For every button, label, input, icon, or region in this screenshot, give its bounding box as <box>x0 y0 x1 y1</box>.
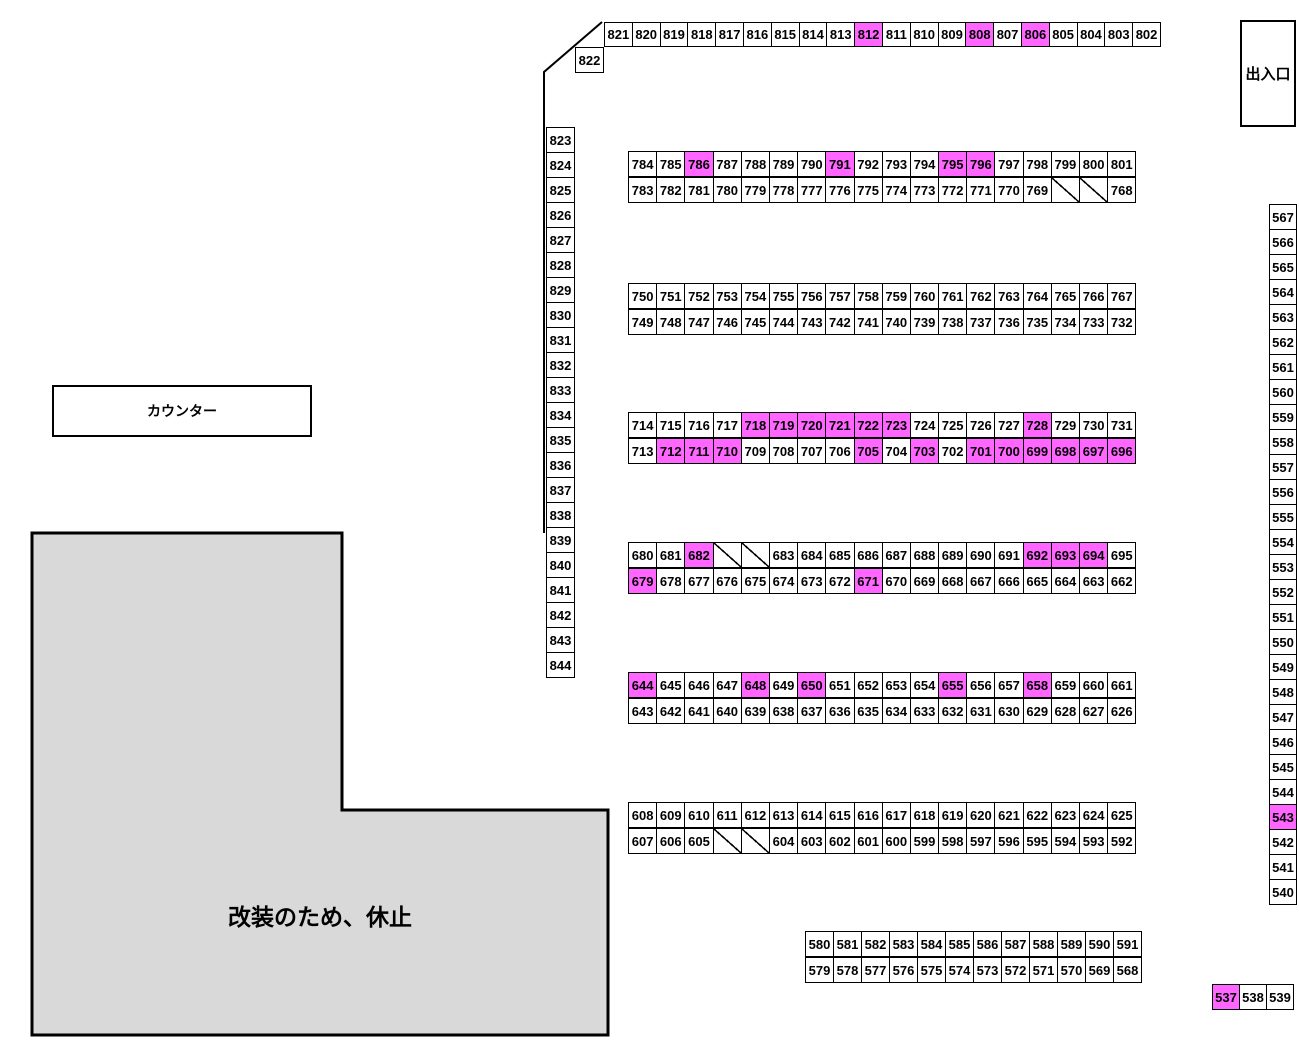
seat-550[interactable]: 550 <box>1269 629 1297 655</box>
seat-812[interactable]: 812 <box>854 22 883 47</box>
seat-766[interactable]: 766 <box>1079 283 1108 309</box>
seat-780[interactable]: 780 <box>713 177 742 203</box>
seat-613[interactable]: 613 <box>769 802 798 828</box>
seat-618[interactable]: 618 <box>910 802 939 828</box>
seat-770[interactable]: 770 <box>994 177 1023 203</box>
seat-603[interactable]: 603 <box>797 828 826 854</box>
seat-585[interactable]: 585 <box>945 931 974 957</box>
seat-755[interactable]: 755 <box>769 283 798 309</box>
seat-614[interactable]: 614 <box>797 802 826 828</box>
seat-624[interactable]: 624 <box>1079 802 1108 828</box>
seat-838[interactable]: 838 <box>546 502 575 528</box>
seat-730[interactable]: 730 <box>1079 412 1108 438</box>
seat-662[interactable]: 662 <box>1107 568 1136 594</box>
seat-584[interactable]: 584 <box>917 931 946 957</box>
seat-541[interactable]: 541 <box>1269 854 1297 880</box>
seat-595[interactable]: 595 <box>1023 828 1052 854</box>
seat-774[interactable]: 774 <box>882 177 911 203</box>
seat-754[interactable]: 754 <box>741 283 770 309</box>
seat-782[interactable]: 782 <box>656 177 685 203</box>
seat-814[interactable]: 814 <box>799 22 828 47</box>
seat-757[interactable]: 757 <box>825 283 854 309</box>
seat-587[interactable]: 587 <box>1001 931 1030 957</box>
seat-776[interactable]: 776 <box>825 177 854 203</box>
seat-805[interactable]: 805 <box>1049 22 1078 47</box>
seat-539[interactable]: 539 <box>1266 984 1294 1010</box>
seat-683[interactable]: 683 <box>769 542 798 568</box>
seat-593[interactable]: 593 <box>1079 828 1108 854</box>
seat-830[interactable]: 830 <box>546 302 575 328</box>
seat-793[interactable]: 793 <box>882 151 911 177</box>
seat-758[interactable]: 758 <box>854 283 883 309</box>
seat-602[interactable]: 602 <box>825 828 854 854</box>
seat-722[interactable]: 722 <box>854 412 883 438</box>
seat-807[interactable]: 807 <box>993 22 1022 47</box>
seat-829[interactable]: 829 <box>546 277 575 303</box>
seat-594[interactable]: 594 <box>1051 828 1080 854</box>
seat-826[interactable]: 826 <box>546 202 575 228</box>
seat-597[interactable]: 597 <box>966 828 995 854</box>
seat-768[interactable]: 768 <box>1107 177 1136 203</box>
seat-742[interactable]: 742 <box>825 309 854 335</box>
seat-724[interactable]: 724 <box>910 412 939 438</box>
seat-553[interactable]: 553 <box>1269 554 1297 580</box>
seat-795[interactable]: 795 <box>938 151 967 177</box>
seat-668[interactable]: 668 <box>938 568 967 594</box>
seat-823[interactable]: 823 <box>546 127 575 153</box>
seat-592[interactable]: 592 <box>1107 828 1136 854</box>
seat-600[interactable]: 600 <box>882 828 911 854</box>
seat-670[interactable]: 670 <box>882 568 911 594</box>
seat-717[interactable]: 717 <box>713 412 742 438</box>
seat-820[interactable]: 820 <box>632 22 661 47</box>
seat-688[interactable]: 688 <box>910 542 939 568</box>
seat-819[interactable]: 819 <box>660 22 689 47</box>
seat-789[interactable]: 789 <box>769 151 798 177</box>
seat-773[interactable]: 773 <box>910 177 939 203</box>
seat-728[interactable]: 728 <box>1023 412 1052 438</box>
seat-678[interactable]: 678 <box>656 568 685 594</box>
seat-604[interactable]: 604 <box>769 828 798 854</box>
seat-674[interactable]: 674 <box>769 568 798 594</box>
seat-569[interactable]: 569 <box>1085 957 1114 983</box>
seat-715[interactable]: 715 <box>656 412 685 438</box>
seat-836[interactable]: 836 <box>546 452 575 478</box>
seat-804[interactable]: 804 <box>1077 22 1106 47</box>
seat-756[interactable]: 756 <box>797 283 826 309</box>
seat-745[interactable]: 745 <box>741 309 770 335</box>
seat-706[interactable]: 706 <box>825 438 854 464</box>
seat-790[interactable]: 790 <box>797 151 826 177</box>
seat-842[interactable]: 842 <box>546 602 575 628</box>
seat-837[interactable]: 837 <box>546 477 575 503</box>
seat-767[interactable]: 767 <box>1107 283 1136 309</box>
seat-712[interactable]: 712 <box>656 438 685 464</box>
seat-632[interactable]: 632 <box>938 698 967 724</box>
seat-673[interactable]: 673 <box>797 568 826 594</box>
seat-659[interactable]: 659 <box>1051 672 1080 698</box>
seat-644[interactable]: 644 <box>628 672 657 698</box>
seat-690[interactable]: 690 <box>966 542 995 568</box>
seat-542[interactable]: 542 <box>1269 829 1297 855</box>
seat-588[interactable]: 588 <box>1029 931 1058 957</box>
seat-557[interactable]: 557 <box>1269 454 1297 480</box>
seat-631[interactable]: 631 <box>966 698 995 724</box>
seat-537[interactable]: 537 <box>1212 984 1240 1010</box>
seat-731[interactable]: 731 <box>1107 412 1136 438</box>
seat-713[interactable]: 713 <box>628 438 657 464</box>
seat-547[interactable]: 547 <box>1269 704 1297 730</box>
seat-813[interactable]: 813 <box>826 22 855 47</box>
seat-664[interactable]: 664 <box>1051 568 1080 594</box>
seat-665[interactable]: 665 <box>1023 568 1052 594</box>
seat-577[interactable]: 577 <box>861 957 890 983</box>
seat-783[interactable]: 783 <box>628 177 657 203</box>
seat-622[interactable]: 622 <box>1023 802 1052 828</box>
seat-666[interactable]: 666 <box>994 568 1023 594</box>
seat-636[interactable]: 636 <box>825 698 854 724</box>
seat-601[interactable]: 601 <box>854 828 883 854</box>
seat-815[interactable]: 815 <box>771 22 800 47</box>
seat-672[interactable]: 672 <box>825 568 854 594</box>
seat-784[interactable]: 784 <box>628 151 657 177</box>
seat-710[interactable]: 710 <box>713 438 742 464</box>
seat-693[interactable]: 693 <box>1051 542 1080 568</box>
seat-778[interactable]: 778 <box>769 177 798 203</box>
seat-572[interactable]: 572 <box>1001 957 1030 983</box>
seat-615[interactable]: 615 <box>825 802 854 828</box>
seat-733[interactable]: 733 <box>1079 309 1108 335</box>
seat-567[interactable]: 567 <box>1269 204 1297 230</box>
seat-607[interactable]: 607 <box>628 828 657 854</box>
seat-546[interactable]: 546 <box>1269 729 1297 755</box>
seat-738[interactable]: 738 <box>938 309 967 335</box>
seat-698[interactable]: 698 <box>1051 438 1080 464</box>
seat-625[interactable]: 625 <box>1107 802 1136 828</box>
seat-635[interactable]: 635 <box>854 698 883 724</box>
seat-791[interactable]: 791 <box>825 151 854 177</box>
seat-653[interactable]: 653 <box>882 672 911 698</box>
seat-640[interactable]: 640 <box>713 698 742 724</box>
seat-801[interactable]: 801 <box>1107 151 1136 177</box>
seat-581[interactable]: 581 <box>833 931 862 957</box>
seat-680[interactable]: 680 <box>628 542 657 568</box>
seat-762[interactable]: 762 <box>966 283 995 309</box>
seat-743[interactable]: 743 <box>797 309 826 335</box>
seat-711[interactable]: 711 <box>684 438 713 464</box>
seat-578[interactable]: 578 <box>833 957 862 983</box>
seat-734[interactable]: 734 <box>1051 309 1080 335</box>
seat-562[interactable]: 562 <box>1269 329 1297 355</box>
seat-786[interactable]: 786 <box>684 151 713 177</box>
seat-843[interactable]: 843 <box>546 627 575 653</box>
seat-649[interactable]: 649 <box>769 672 798 698</box>
seat-753[interactable]: 753 <box>713 283 742 309</box>
seat-686[interactable]: 686 <box>854 542 883 568</box>
seat-701[interactable]: 701 <box>966 438 995 464</box>
seat-703[interactable]: 703 <box>910 438 939 464</box>
seat-806[interactable]: 806 <box>1021 22 1050 47</box>
seat-799[interactable]: 799 <box>1051 151 1080 177</box>
seat-608[interactable]: 608 <box>628 802 657 828</box>
seat-645[interactable]: 645 <box>656 672 685 698</box>
seat-771[interactable]: 771 <box>966 177 995 203</box>
seat-556[interactable]: 556 <box>1269 479 1297 505</box>
seat-719[interactable]: 719 <box>769 412 798 438</box>
seat-552[interactable]: 552 <box>1269 579 1297 605</box>
seat-643[interactable]: 643 <box>628 698 657 724</box>
seat-654[interactable]: 654 <box>910 672 939 698</box>
seat-657[interactable]: 657 <box>994 672 1023 698</box>
seat-637[interactable]: 637 <box>797 698 826 724</box>
seat-660[interactable]: 660 <box>1079 672 1108 698</box>
seat-747[interactable]: 747 <box>684 309 713 335</box>
seat-571[interactable]: 571 <box>1029 957 1058 983</box>
seat-551[interactable]: 551 <box>1269 604 1297 630</box>
seat-817[interactable]: 817 <box>715 22 744 47</box>
seat-554[interactable]: 554 <box>1269 529 1297 555</box>
seat-834[interactable]: 834 <box>546 402 575 428</box>
seat-639[interactable]: 639 <box>741 698 770 724</box>
seat-634[interactable]: 634 <box>882 698 911 724</box>
seat-580[interactable]: 580 <box>805 931 834 957</box>
seat-827[interactable]: 827 <box>546 227 575 253</box>
seat-816[interactable]: 816 <box>743 22 772 47</box>
seat-726[interactable]: 726 <box>966 412 995 438</box>
seat-540[interactable]: 540 <box>1269 879 1297 905</box>
seat-669[interactable]: 669 <box>910 568 939 594</box>
seat-574[interactable]: 574 <box>945 957 974 983</box>
seat-744[interactable]: 744 <box>769 309 798 335</box>
seat-808[interactable]: 808 <box>965 22 994 47</box>
seat-740[interactable]: 740 <box>882 309 911 335</box>
seat-561[interactable]: 561 <box>1269 354 1297 380</box>
seat-538[interactable]: 538 <box>1239 984 1267 1010</box>
seat-682[interactable]: 682 <box>684 542 713 568</box>
seat-721[interactable]: 721 <box>825 412 854 438</box>
seat-841[interactable]: 841 <box>546 577 575 603</box>
seat-652[interactable]: 652 <box>854 672 883 698</box>
seat-671[interactable]: 671 <box>854 568 883 594</box>
seat-599[interactable]: 599 <box>910 828 939 854</box>
seat-605[interactable]: 605 <box>684 828 713 854</box>
seat-564[interactable]: 564 <box>1269 279 1297 305</box>
seat-694[interactable]: 694 <box>1079 542 1108 568</box>
seat-833[interactable]: 833 <box>546 377 575 403</box>
seat-803[interactable]: 803 <box>1104 22 1133 47</box>
seat-752[interactable]: 752 <box>684 283 713 309</box>
seat-661[interactable]: 661 <box>1107 672 1136 698</box>
seat-575[interactable]: 575 <box>917 957 946 983</box>
seat-656[interactable]: 656 <box>966 672 995 698</box>
seat-716[interactable]: 716 <box>684 412 713 438</box>
seat-621[interactable]: 621 <box>994 802 1023 828</box>
seat-626[interactable]: 626 <box>1107 698 1136 724</box>
seat-741[interactable]: 741 <box>854 309 883 335</box>
seat-718[interactable]: 718 <box>741 412 770 438</box>
seat-705[interactable]: 705 <box>854 438 883 464</box>
seat-832[interactable]: 832 <box>546 352 575 378</box>
seat-570[interactable]: 570 <box>1057 957 1086 983</box>
seat-555[interactable]: 555 <box>1269 504 1297 530</box>
seat-831[interactable]: 831 <box>546 327 575 353</box>
seat-560[interactable]: 560 <box>1269 379 1297 405</box>
seat-714[interactable]: 714 <box>628 412 657 438</box>
seat-729[interactable]: 729 <box>1051 412 1080 438</box>
seat-623[interactable]: 623 <box>1051 802 1080 828</box>
seat-616[interactable]: 616 <box>854 802 883 828</box>
seat-775[interactable]: 775 <box>854 177 883 203</box>
seat-675[interactable]: 675 <box>741 568 770 594</box>
seat-545[interactable]: 545 <box>1269 754 1297 780</box>
seat-648[interactable]: 648 <box>741 672 770 698</box>
seat-576[interactable]: 576 <box>889 957 918 983</box>
seat-779[interactable]: 779 <box>741 177 770 203</box>
seat-676[interactable]: 676 <box>713 568 742 594</box>
seat-641[interactable]: 641 <box>684 698 713 724</box>
seat-689[interactable]: 689 <box>938 542 967 568</box>
seat-723[interactable]: 723 <box>882 412 911 438</box>
seat-764[interactable]: 764 <box>1023 283 1052 309</box>
seat-696[interactable]: 696 <box>1107 438 1136 464</box>
seat-589[interactable]: 589 <box>1057 931 1086 957</box>
seat-559[interactable]: 559 <box>1269 404 1297 430</box>
seat-586[interactable]: 586 <box>973 931 1002 957</box>
seat-681[interactable]: 681 <box>656 542 685 568</box>
seat-620[interactable]: 620 <box>966 802 995 828</box>
seat-692[interactable]: 692 <box>1023 542 1052 568</box>
seat-797[interactable]: 797 <box>994 151 1023 177</box>
seat-579[interactable]: 579 <box>805 957 834 983</box>
seat-839[interactable]: 839 <box>546 527 575 553</box>
seat-748[interactable]: 748 <box>656 309 685 335</box>
seat-697[interactable]: 697 <box>1079 438 1108 464</box>
seat-548[interactable]: 548 <box>1269 679 1297 705</box>
seat-802[interactable]: 802 <box>1132 22 1161 47</box>
seat-781[interactable]: 781 <box>684 177 713 203</box>
seat-642[interactable]: 642 <box>656 698 685 724</box>
seat-629[interactable]: 629 <box>1023 698 1052 724</box>
seat-787[interactable]: 787 <box>713 151 742 177</box>
seat-844[interactable]: 844 <box>546 652 575 678</box>
seat-612[interactable]: 612 <box>741 802 770 828</box>
seat-809[interactable]: 809 <box>938 22 967 47</box>
seat-777[interactable]: 777 <box>797 177 826 203</box>
seat-699[interactable]: 699 <box>1023 438 1052 464</box>
seat-824[interactable]: 824 <box>546 152 575 178</box>
seat-667[interactable]: 667 <box>966 568 995 594</box>
seat-749[interactable]: 749 <box>628 309 657 335</box>
seat-840[interactable]: 840 <box>546 552 575 578</box>
seat-609[interactable]: 609 <box>656 802 685 828</box>
seat-751[interactable]: 751 <box>656 283 685 309</box>
seat-750[interactable]: 750 <box>628 283 657 309</box>
seat-583[interactable]: 583 <box>889 931 918 957</box>
seat-687[interactable]: 687 <box>882 542 911 568</box>
seat-772[interactable]: 772 <box>938 177 967 203</box>
seat-685[interactable]: 685 <box>825 542 854 568</box>
seat-563[interactable]: 563 <box>1269 304 1297 330</box>
seat-821[interactable]: 821 <box>604 22 633 47</box>
seat-725[interactable]: 725 <box>938 412 967 438</box>
seat-650[interactable]: 650 <box>797 672 826 698</box>
seat-684[interactable]: 684 <box>797 542 826 568</box>
seat-582[interactable]: 582 <box>861 931 890 957</box>
seat-633[interactable]: 633 <box>910 698 939 724</box>
seat-811[interactable]: 811 <box>882 22 911 47</box>
seat-611[interactable]: 611 <box>713 802 742 828</box>
seat-610[interactable]: 610 <box>684 802 713 828</box>
seat-835[interactable]: 835 <box>546 427 575 453</box>
seat-727[interactable]: 727 <box>994 412 1023 438</box>
seat-708[interactable]: 708 <box>769 438 798 464</box>
seat-617[interactable]: 617 <box>882 802 911 828</box>
seat-736[interactable]: 736 <box>994 309 1023 335</box>
seat-702[interactable]: 702 <box>938 438 967 464</box>
seat-800[interactable]: 800 <box>1079 151 1108 177</box>
seat-735[interactable]: 735 <box>1023 309 1052 335</box>
seat-794[interactable]: 794 <box>910 151 939 177</box>
seat-739[interactable]: 739 <box>910 309 939 335</box>
seat-565[interactable]: 565 <box>1269 254 1297 280</box>
seat-792[interactable]: 792 <box>854 151 883 177</box>
seat-646[interactable]: 646 <box>684 672 713 698</box>
seat-619[interactable]: 619 <box>938 802 967 828</box>
seat-704[interactable]: 704 <box>882 438 911 464</box>
seat-760[interactable]: 760 <box>910 283 939 309</box>
seat-707[interactable]: 707 <box>797 438 826 464</box>
seat-818[interactable]: 818 <box>687 22 716 47</box>
seat-763[interactable]: 763 <box>994 283 1023 309</box>
seat-761[interactable]: 761 <box>938 283 967 309</box>
seat-695[interactable]: 695 <box>1107 542 1136 568</box>
seat-663[interactable]: 663 <box>1079 568 1108 594</box>
seat-825[interactable]: 825 <box>546 177 575 203</box>
seat-700[interactable]: 700 <box>994 438 1023 464</box>
seat-677[interactable]: 677 <box>684 568 713 594</box>
seat-655[interactable]: 655 <box>938 672 967 698</box>
seat-810[interactable]: 810 <box>910 22 939 47</box>
seat-769[interactable]: 769 <box>1023 177 1052 203</box>
seat-598[interactable]: 598 <box>938 828 967 854</box>
seat-647[interactable]: 647 <box>713 672 742 698</box>
seat-590[interactable]: 590 <box>1085 931 1114 957</box>
seat-746[interactable]: 746 <box>713 309 742 335</box>
seat-651[interactable]: 651 <box>825 672 854 698</box>
seat-544[interactable]: 544 <box>1269 779 1297 805</box>
seat-566[interactable]: 566 <box>1269 229 1297 255</box>
seat-628[interactable]: 628 <box>1051 698 1080 724</box>
seat-543[interactable]: 543 <box>1269 804 1297 830</box>
seat-765[interactable]: 765 <box>1051 283 1080 309</box>
seat-591[interactable]: 591 <box>1113 931 1142 957</box>
seat-630[interactable]: 630 <box>994 698 1023 724</box>
seat-785[interactable]: 785 <box>656 151 685 177</box>
seat-798[interactable]: 798 <box>1023 151 1052 177</box>
seat-558[interactable]: 558 <box>1269 429 1297 455</box>
seat-691[interactable]: 691 <box>994 542 1023 568</box>
seat-709[interactable]: 709 <box>741 438 770 464</box>
seat-573[interactable]: 573 <box>973 957 1002 983</box>
seat-720[interactable]: 720 <box>797 412 826 438</box>
seat-596[interactable]: 596 <box>994 828 1023 854</box>
seat-788[interactable]: 788 <box>741 151 770 177</box>
seat-568[interactable]: 568 <box>1113 957 1142 983</box>
seat-732[interactable]: 732 <box>1107 309 1136 335</box>
seat-828[interactable]: 828 <box>546 252 575 278</box>
seat-737[interactable]: 737 <box>966 309 995 335</box>
seat-679[interactable]: 679 <box>628 568 657 594</box>
